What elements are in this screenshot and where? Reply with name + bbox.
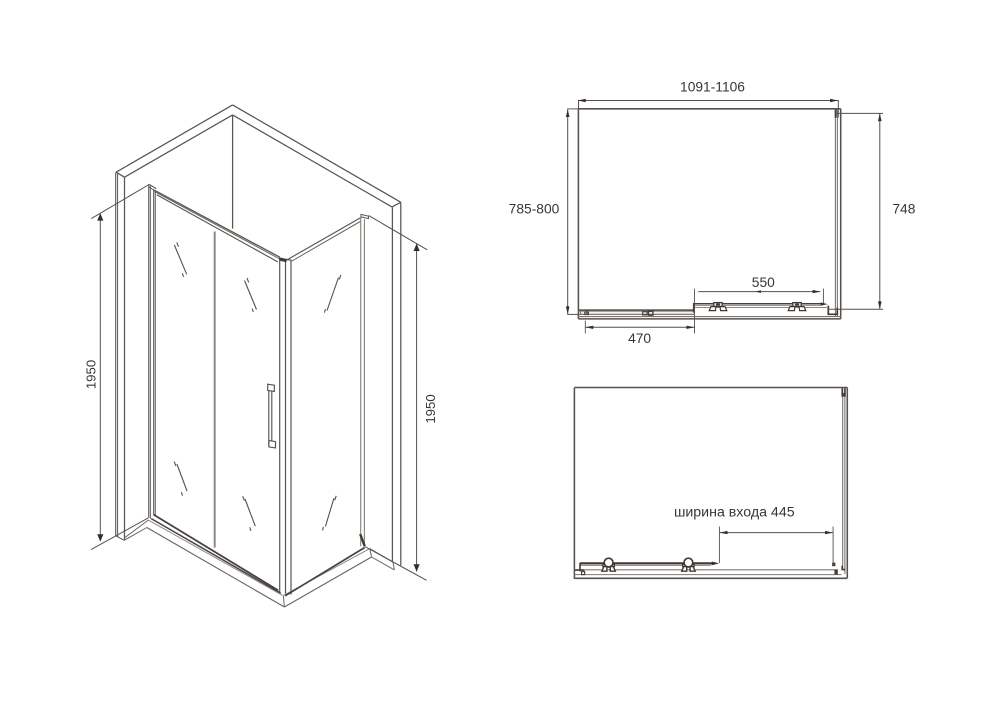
svg-text:ширина входа 445: ширина входа 445 xyxy=(674,505,795,521)
svg-text:1950: 1950 xyxy=(84,360,99,389)
svg-text:785-800: 785-800 xyxy=(509,201,560,216)
svg-text:748: 748 xyxy=(892,201,915,216)
svg-text:550: 550 xyxy=(752,275,775,290)
svg-text:470: 470 xyxy=(628,331,651,346)
svg-text:1091-1106: 1091-1106 xyxy=(680,80,745,95)
svg-text:1950: 1950 xyxy=(423,394,438,423)
